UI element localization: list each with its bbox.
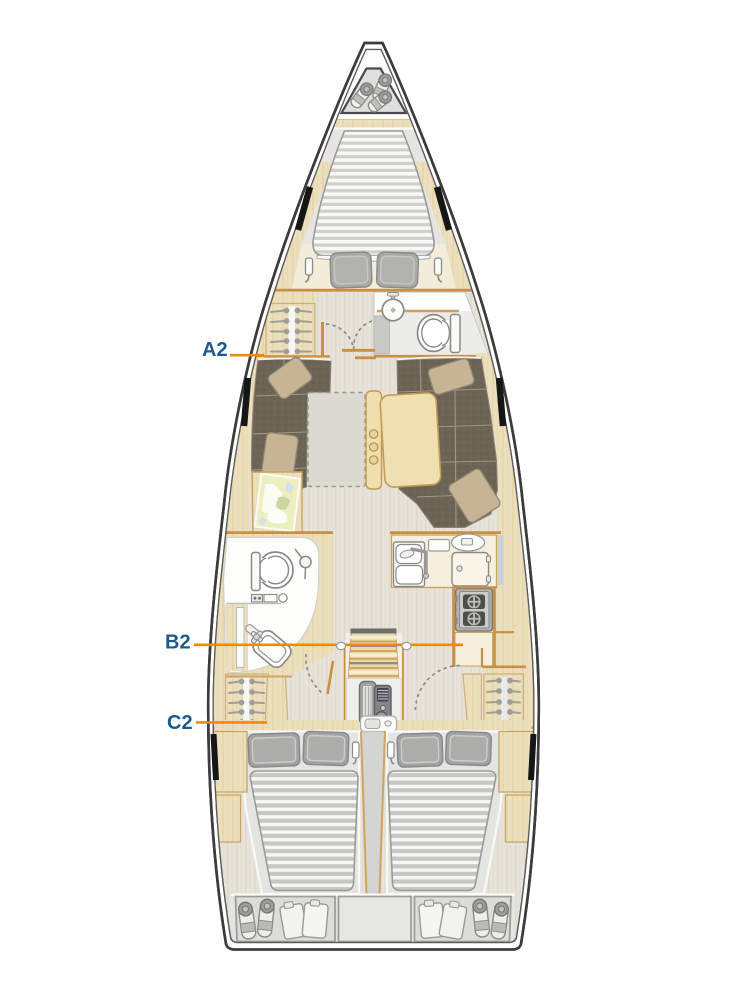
svg-text:A2: A2 — [202, 339, 228, 361]
svg-text:C2: C2 — [167, 712, 193, 734]
svg-text:B2: B2 — [165, 632, 191, 654]
